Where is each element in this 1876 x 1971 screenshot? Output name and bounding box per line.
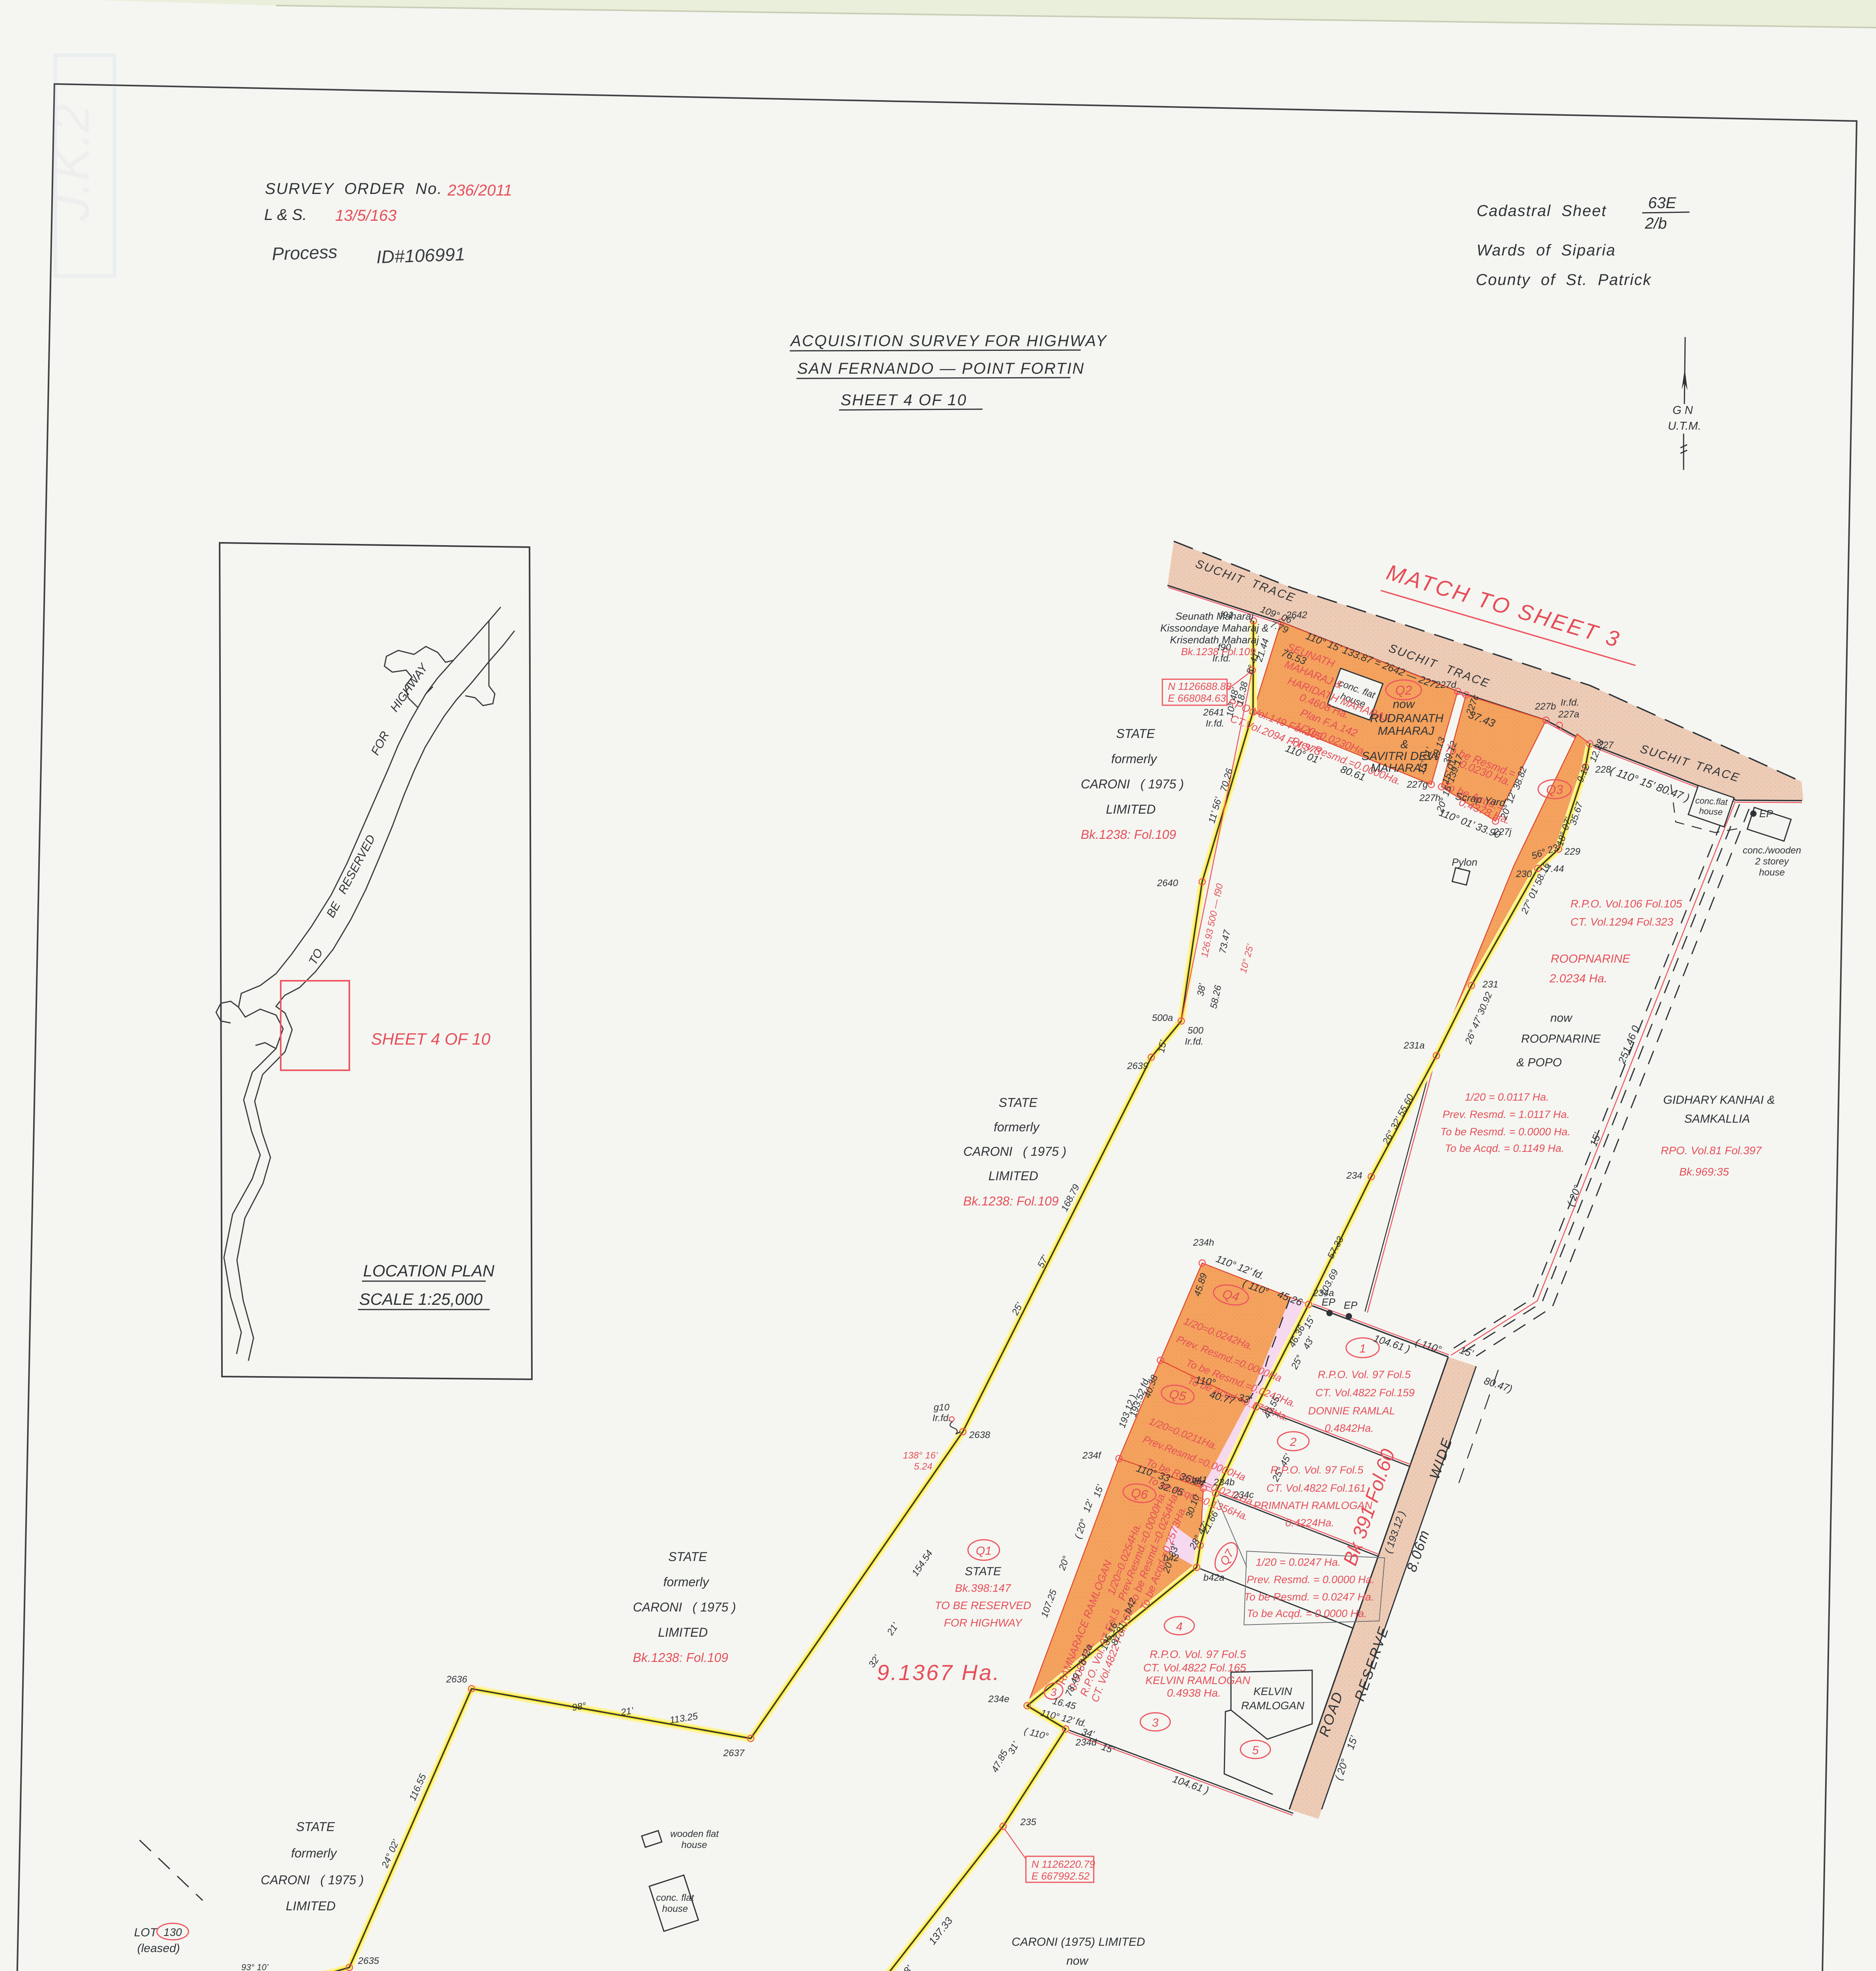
svg-text:227g: 227g <box>1406 779 1428 790</box>
svg-text:1/20 = 0.0247 Ha.: 1/20 = 0.0247 Ha. <box>1256 1556 1341 1568</box>
svg-text:4: 4 <box>1176 1620 1183 1633</box>
svg-text:LIMITED: LIMITED <box>1106 802 1156 816</box>
svg-text:234e: 234e <box>988 1694 1009 1705</box>
svg-text:MAHARAJ: MAHARAJ <box>1378 725 1434 738</box>
svg-text:CT. Vol.4822 Fol.161: CT. Vol.4822 Fol.161 <box>1266 1482 1366 1494</box>
svg-text:2639: 2639 <box>1127 1061 1148 1071</box>
svg-text:County of St. Patrick: County of St. Patrick <box>1476 271 1652 289</box>
svg-text:2635: 2635 <box>358 1956 379 1966</box>
svg-text:house: house <box>662 1904 688 1914</box>
svg-text:231a: 231a <box>1403 1040 1425 1051</box>
svg-text:LIMITED: LIMITED <box>988 1169 1038 1183</box>
svg-text:CT. Vol.1294 Fol.323: CT. Vol.1294 Fol.323 <box>1570 916 1673 928</box>
svg-text:234f: 234f <box>1082 1450 1102 1461</box>
svg-text:Seunath Maharaj: Seunath Maharaj <box>1175 610 1254 622</box>
svg-text:PRIMNATH RAMLOGAN: PRIMNATH RAMLOGAN <box>1253 1500 1373 1511</box>
svg-text:& POPO: & POPO <box>1516 1056 1562 1069</box>
svg-text:2637: 2637 <box>723 1748 745 1759</box>
svg-text:Q1: Q1 <box>976 1544 992 1557</box>
svg-text:E 668084.63: E 668084.63 <box>1168 692 1226 704</box>
svg-text:STATE: STATE <box>1116 727 1155 741</box>
svg-text:Prev. Resmd. = 1.0117 Ha.: Prev. Resmd. = 1.0117 Ha. <box>1443 1108 1570 1120</box>
svg-text:g10: g10 <box>934 1402 950 1413</box>
svg-text:1: 1 <box>1359 1342 1366 1355</box>
svg-text:138° 16’: 138° 16’ <box>903 1450 938 1461</box>
svg-text:N 1126220.79: N 1126220.79 <box>1031 1858 1095 1870</box>
svg-text:f91: f91 <box>1220 610 1233 620</box>
svg-text:Krisendath Maharaj: Krisendath Maharaj <box>1170 634 1259 646</box>
svg-text:R.P.O. Vol.106 Fol.105: R.P.O. Vol.106 Fol.105 <box>1570 898 1682 910</box>
svg-text:KELVIN: KELVIN <box>1253 1685 1292 1697</box>
svg-text:CT. Vol.4822 Fol.165: CT. Vol.4822 Fol.165 <box>1143 1662 1246 1674</box>
svg-text:130: 130 <box>164 1926 182 1938</box>
svg-text:500a: 500a <box>1152 1013 1173 1023</box>
svg-text:GIDHARY KANHAI &: GIDHARY KANHAI & <box>1663 1094 1775 1107</box>
svg-text:DONNIE RAMLAL: DONNIE RAMLAL <box>1308 1405 1395 1417</box>
svg-text:N 1126688.88: N 1126688.88 <box>1168 680 1232 692</box>
svg-text:CARONI ( 1975 ): CARONI ( 1975 ) <box>1081 777 1184 791</box>
svg-text:house: house <box>1759 867 1785 878</box>
svg-text:ID#106991: ID#106991 <box>376 244 466 267</box>
svg-text:&: & <box>1400 738 1408 751</box>
svg-text:ROOPNARINE: ROOPNARINE <box>1521 1032 1601 1045</box>
svg-text:Q3: Q3 <box>1546 782 1563 797</box>
svg-text:235: 235 <box>1020 1817 1037 1828</box>
svg-text:234h: 234h <box>1193 1237 1214 1248</box>
svg-text:234d: 234d <box>1075 1737 1097 1748</box>
svg-text:SAMKALLIA: SAMKALLIA <box>1684 1112 1750 1125</box>
svg-text:Bk.398:147: Bk.398:147 <box>955 1582 1011 1594</box>
svg-text:2642: 2642 <box>1286 610 1307 620</box>
svg-text:Bk.1238: Fol.109: Bk.1238: Fol.109 <box>633 1651 728 1665</box>
svg-text:Ir.fd.: Ir.fd. <box>932 1413 951 1423</box>
svg-text:Ir.fd.: Ir.fd. <box>1206 718 1224 729</box>
svg-text:Q6: Q6 <box>1130 1485 1149 1502</box>
svg-text:227j: 227j <box>1493 827 1512 837</box>
svg-text:LOT: LOT <box>134 1926 158 1939</box>
svg-text:3: 3 <box>1152 1716 1159 1729</box>
svg-text:SCALE 1:25,000: SCALE 1:25,000 <box>359 1290 483 1308</box>
svg-text:conc.flat: conc.flat <box>1695 795 1728 807</box>
svg-text:Wards of Siparia: Wards of Siparia <box>1477 242 1616 259</box>
svg-text:231: 231 <box>1482 979 1498 990</box>
svg-text:236/2011: 236/2011 <box>447 182 512 199</box>
svg-text:Q5: Q5 <box>1168 1387 1187 1404</box>
svg-text:21’: 21’ <box>620 1705 635 1718</box>
svg-text:Cadastral Sheet: Cadastral Sheet <box>1477 202 1607 220</box>
svg-text:2: 2 <box>1290 1436 1297 1449</box>
svg-text:2641: 2641 <box>1203 707 1224 718</box>
svg-text:conc. flat: conc. flat <box>656 1893 694 1903</box>
svg-text:b42a: b42a <box>1203 1572 1224 1583</box>
svg-text:0.4842Ha.: 0.4842Ha. <box>1325 1422 1374 1434</box>
svg-text:500: 500 <box>1188 1025 1204 1036</box>
svg-text:CARONI ( 1975 ): CARONI ( 1975 ) <box>633 1600 736 1614</box>
svg-text:Prev. Resmd. = 0.0000 Ha.: Prev. Resmd. = 0.0000 Ha. <box>1247 1574 1374 1585</box>
svg-text:house: house <box>681 1840 707 1850</box>
svg-text:2 storey: 2 storey <box>1755 856 1789 867</box>
svg-text:U.T.M.: U.T.M. <box>1668 420 1701 432</box>
svg-text:9.1367 Ha.: 9.1367 Ha. <box>877 1660 1001 1685</box>
svg-text:SAN FERNANDO — POINT FORTI: SAN FERNANDO — POINT FORTIN <box>797 360 1085 377</box>
svg-text:STATE: STATE <box>668 1550 707 1564</box>
svg-text:93° 10’: 93° 10’ <box>241 1962 269 1971</box>
svg-text:LIMITED: LIMITED <box>286 1899 336 1913</box>
svg-text:KELVIN RAMLOGAN: KELVIN RAMLOGAN <box>1145 1674 1251 1686</box>
svg-text:Bk.1238: Fol.109: Bk.1238: Fol.109 <box>1081 827 1176 842</box>
svg-text:J.K.2: J.K.2 <box>42 104 100 221</box>
svg-text:227a: 227a <box>1558 709 1579 720</box>
svg-text:now: now <box>1550 1012 1573 1025</box>
svg-text:2636: 2636 <box>446 1674 468 1685</box>
svg-text:Pylon: Pylon <box>1452 856 1477 868</box>
svg-text:To be Resmd. = 0.0000 Ha.: To be Resmd. = 0.0000 Ha. <box>1440 1126 1570 1138</box>
svg-text:Process: Process <box>272 241 338 264</box>
svg-text:2640: 2640 <box>1157 878 1179 889</box>
svg-text:227d: 227d <box>1435 680 1456 690</box>
svg-text:(leased): (leased) <box>137 1942 180 1955</box>
svg-text:234c: 234c <box>1233 1490 1254 1500</box>
svg-text:G N: G N <box>1673 404 1693 417</box>
svg-text:now: now <box>1393 698 1415 711</box>
svg-text:229: 229 <box>1564 846 1580 857</box>
svg-text:conc./wooden: conc./wooden <box>1743 845 1801 856</box>
svg-text:228: 228 <box>1595 764 1611 775</box>
svg-text:RUDRANATH: RUDRANATH <box>1370 712 1443 725</box>
svg-text:To be Acqd. = 0.1149 Ha.: To be Acqd. = 0.1149 Ha. <box>1445 1142 1565 1154</box>
svg-text:TO BE RESERVED: TO BE RESERVED <box>935 1599 1031 1611</box>
svg-text:RPO. Vol.81 Fol.397: RPO. Vol.81 Fol.397 <box>1661 1144 1762 1157</box>
svg-text:ACQUISITION SURVEY FOR HIGH: ACQUISITION SURVEY FOR HIGHWAY <box>790 332 1108 350</box>
svg-text:5: 5 <box>1252 1744 1259 1757</box>
svg-text:RAMLOGAN: RAMLOGAN <box>1241 1699 1305 1712</box>
svg-text:2/b: 2/b <box>1645 215 1667 232</box>
svg-text:L & S.: L & S. <box>264 206 307 224</box>
svg-text:formerly: formerly <box>291 1846 338 1860</box>
svg-text:FOR HIGHWAY: FOR HIGHWAY <box>944 1617 1023 1629</box>
svg-text:STATE: STATE <box>999 1095 1038 1110</box>
svg-text:formerly: formerly <box>994 1120 1040 1134</box>
svg-text:Kissoondaye Maharaj &: Kissoondaye Maharaj & <box>1160 622 1269 634</box>
svg-text:SHEET 4 OF 10: SHEET 4 OF 10 <box>371 1030 490 1048</box>
svg-text:2.0234 Ha.: 2.0234 Ha. <box>1549 972 1607 985</box>
svg-text:formerly: formerly <box>663 1575 710 1589</box>
svg-text:EP: EP <box>1759 808 1773 820</box>
svg-text:2638: 2638 <box>969 1430 990 1440</box>
svg-text:Ir.fd.: Ir.fd. <box>1212 653 1231 664</box>
svg-text:now: now <box>1066 1954 1089 1967</box>
svg-text:E 667992.52: E 667992.52 <box>1031 1870 1090 1882</box>
svg-text:CT. Vol.4822 Fol.159: CT. Vol.4822 Fol.159 <box>1315 1387 1415 1399</box>
svg-text:Q2: Q2 <box>1395 683 1412 697</box>
svg-text:0.4938 Ha.: 0.4938 Ha. <box>1167 1687 1221 1699</box>
svg-text:Ir.fd.: Ir.fd. <box>1561 697 1579 708</box>
svg-text:SHEET 4 OF 10: SHEET 4 OF 10 <box>841 391 967 409</box>
svg-text:13/5/163: 13/5/163 <box>335 207 397 224</box>
svg-text:0.4224Ha.: 0.4224Ha. <box>1285 1517 1335 1529</box>
svg-text:STATE: STATE <box>296 1820 335 1834</box>
svg-text:formerly: formerly <box>1111 752 1158 766</box>
svg-text:CARONI ( 1975 ): CARONI ( 1975 ) <box>261 1873 364 1887</box>
svg-text:R.P.O. Vol. 97 Fol.5: R.P.O. Vol. 97 Fol.5 <box>1150 1648 1246 1660</box>
svg-text:STATE: STATE <box>965 1565 1001 1578</box>
svg-text:To be Acqd. = 0.0000 Ha.: To be Acqd. = 0.0000 Ha. <box>1247 1608 1367 1619</box>
svg-text:wooden flat: wooden flat <box>670 1829 719 1839</box>
svg-text:38’: 38’ <box>1195 982 1208 997</box>
svg-text:Ir.fd.: Ir.fd. <box>1185 1036 1203 1047</box>
svg-text:234a: 234a <box>1313 1288 1334 1298</box>
svg-text:EP: EP <box>1344 1299 1358 1311</box>
svg-text:R.P.O. Vol. 97 Fol.5: R.P.O. Vol. 97 Fol.5 <box>1318 1369 1411 1380</box>
svg-text:227b: 227b <box>1535 701 1556 712</box>
svg-text:234: 234 <box>1346 1170 1362 1181</box>
svg-text:5.24: 5.24 <box>914 1461 932 1472</box>
svg-text:Bk.969:35: Bk.969:35 <box>1679 1166 1729 1178</box>
svg-text:f90: f90 <box>1218 642 1231 653</box>
svg-text:LOCATION PLAN: LOCATION PLAN <box>363 1261 495 1280</box>
svg-text:LIMITED: LIMITED <box>658 1625 708 1639</box>
svg-text:CARONI (1975) LIMITED: CARONI (1975) LIMITED <box>1012 1936 1145 1949</box>
svg-text:SURVEY ORDER No.: SURVEY ORDER No. <box>265 180 442 197</box>
svg-text:CARONI ( 1975 ): CARONI ( 1975 ) <box>963 1144 1066 1159</box>
svg-text:230: 230 <box>1516 869 1532 879</box>
svg-text:house: house <box>1699 806 1723 817</box>
svg-text:To be Resmd. = 0.0247 Ha.: To be Resmd. = 0.0247 Ha. <box>1244 1591 1374 1603</box>
svg-text:1/20 = 0.0117 Ha.: 1/20 = 0.0117 Ha. <box>1465 1091 1549 1103</box>
svg-text:63E: 63E <box>1648 194 1676 212</box>
svg-text:Bk.1238: Fol.109: Bk.1238: Fol.109 <box>963 1194 1059 1208</box>
svg-text:R.P.O. Vol. 97 Fol.5: R.P.O. Vol. 97 Fol.5 <box>1270 1464 1364 1476</box>
svg-text:ROOPNARINE: ROOPNARINE <box>1551 952 1631 965</box>
svg-text:98°: 98° <box>571 1701 587 1713</box>
svg-text:234b: 234b <box>1213 1477 1235 1488</box>
